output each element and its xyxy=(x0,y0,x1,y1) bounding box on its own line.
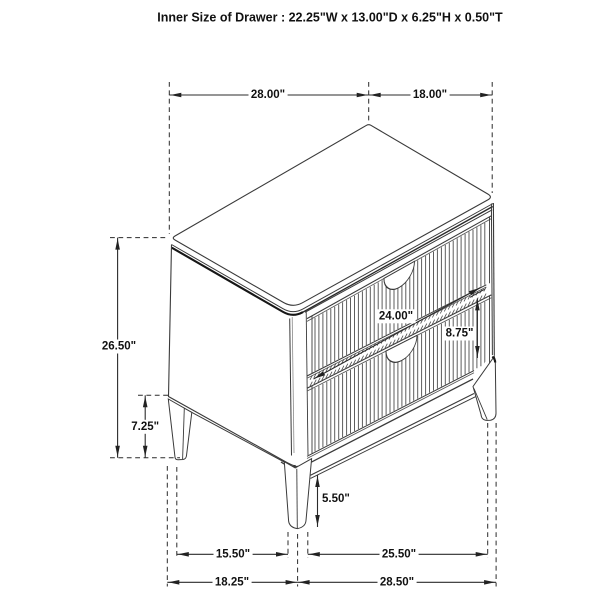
svg-text:8.75": 8.75" xyxy=(446,328,474,340)
svg-text:26.50": 26.50" xyxy=(102,341,136,353)
svg-text:24.00": 24.00" xyxy=(379,310,413,322)
svg-text:7.25": 7.25" xyxy=(131,421,159,433)
svg-text:25.50": 25.50" xyxy=(382,548,416,560)
svg-text:18.00": 18.00" xyxy=(413,89,447,101)
svg-text:5.50": 5.50" xyxy=(322,493,350,505)
svg-text:Inner Size of Drawer : 22.25"W: Inner Size of Drawer : 22.25"W x 13.00"D… xyxy=(157,11,503,25)
svg-text:28.00": 28.00" xyxy=(251,89,285,101)
svg-text:18.25": 18.25" xyxy=(215,576,249,588)
svg-text:28.50": 28.50" xyxy=(380,576,414,588)
svg-text:15.50": 15.50" xyxy=(216,548,250,560)
